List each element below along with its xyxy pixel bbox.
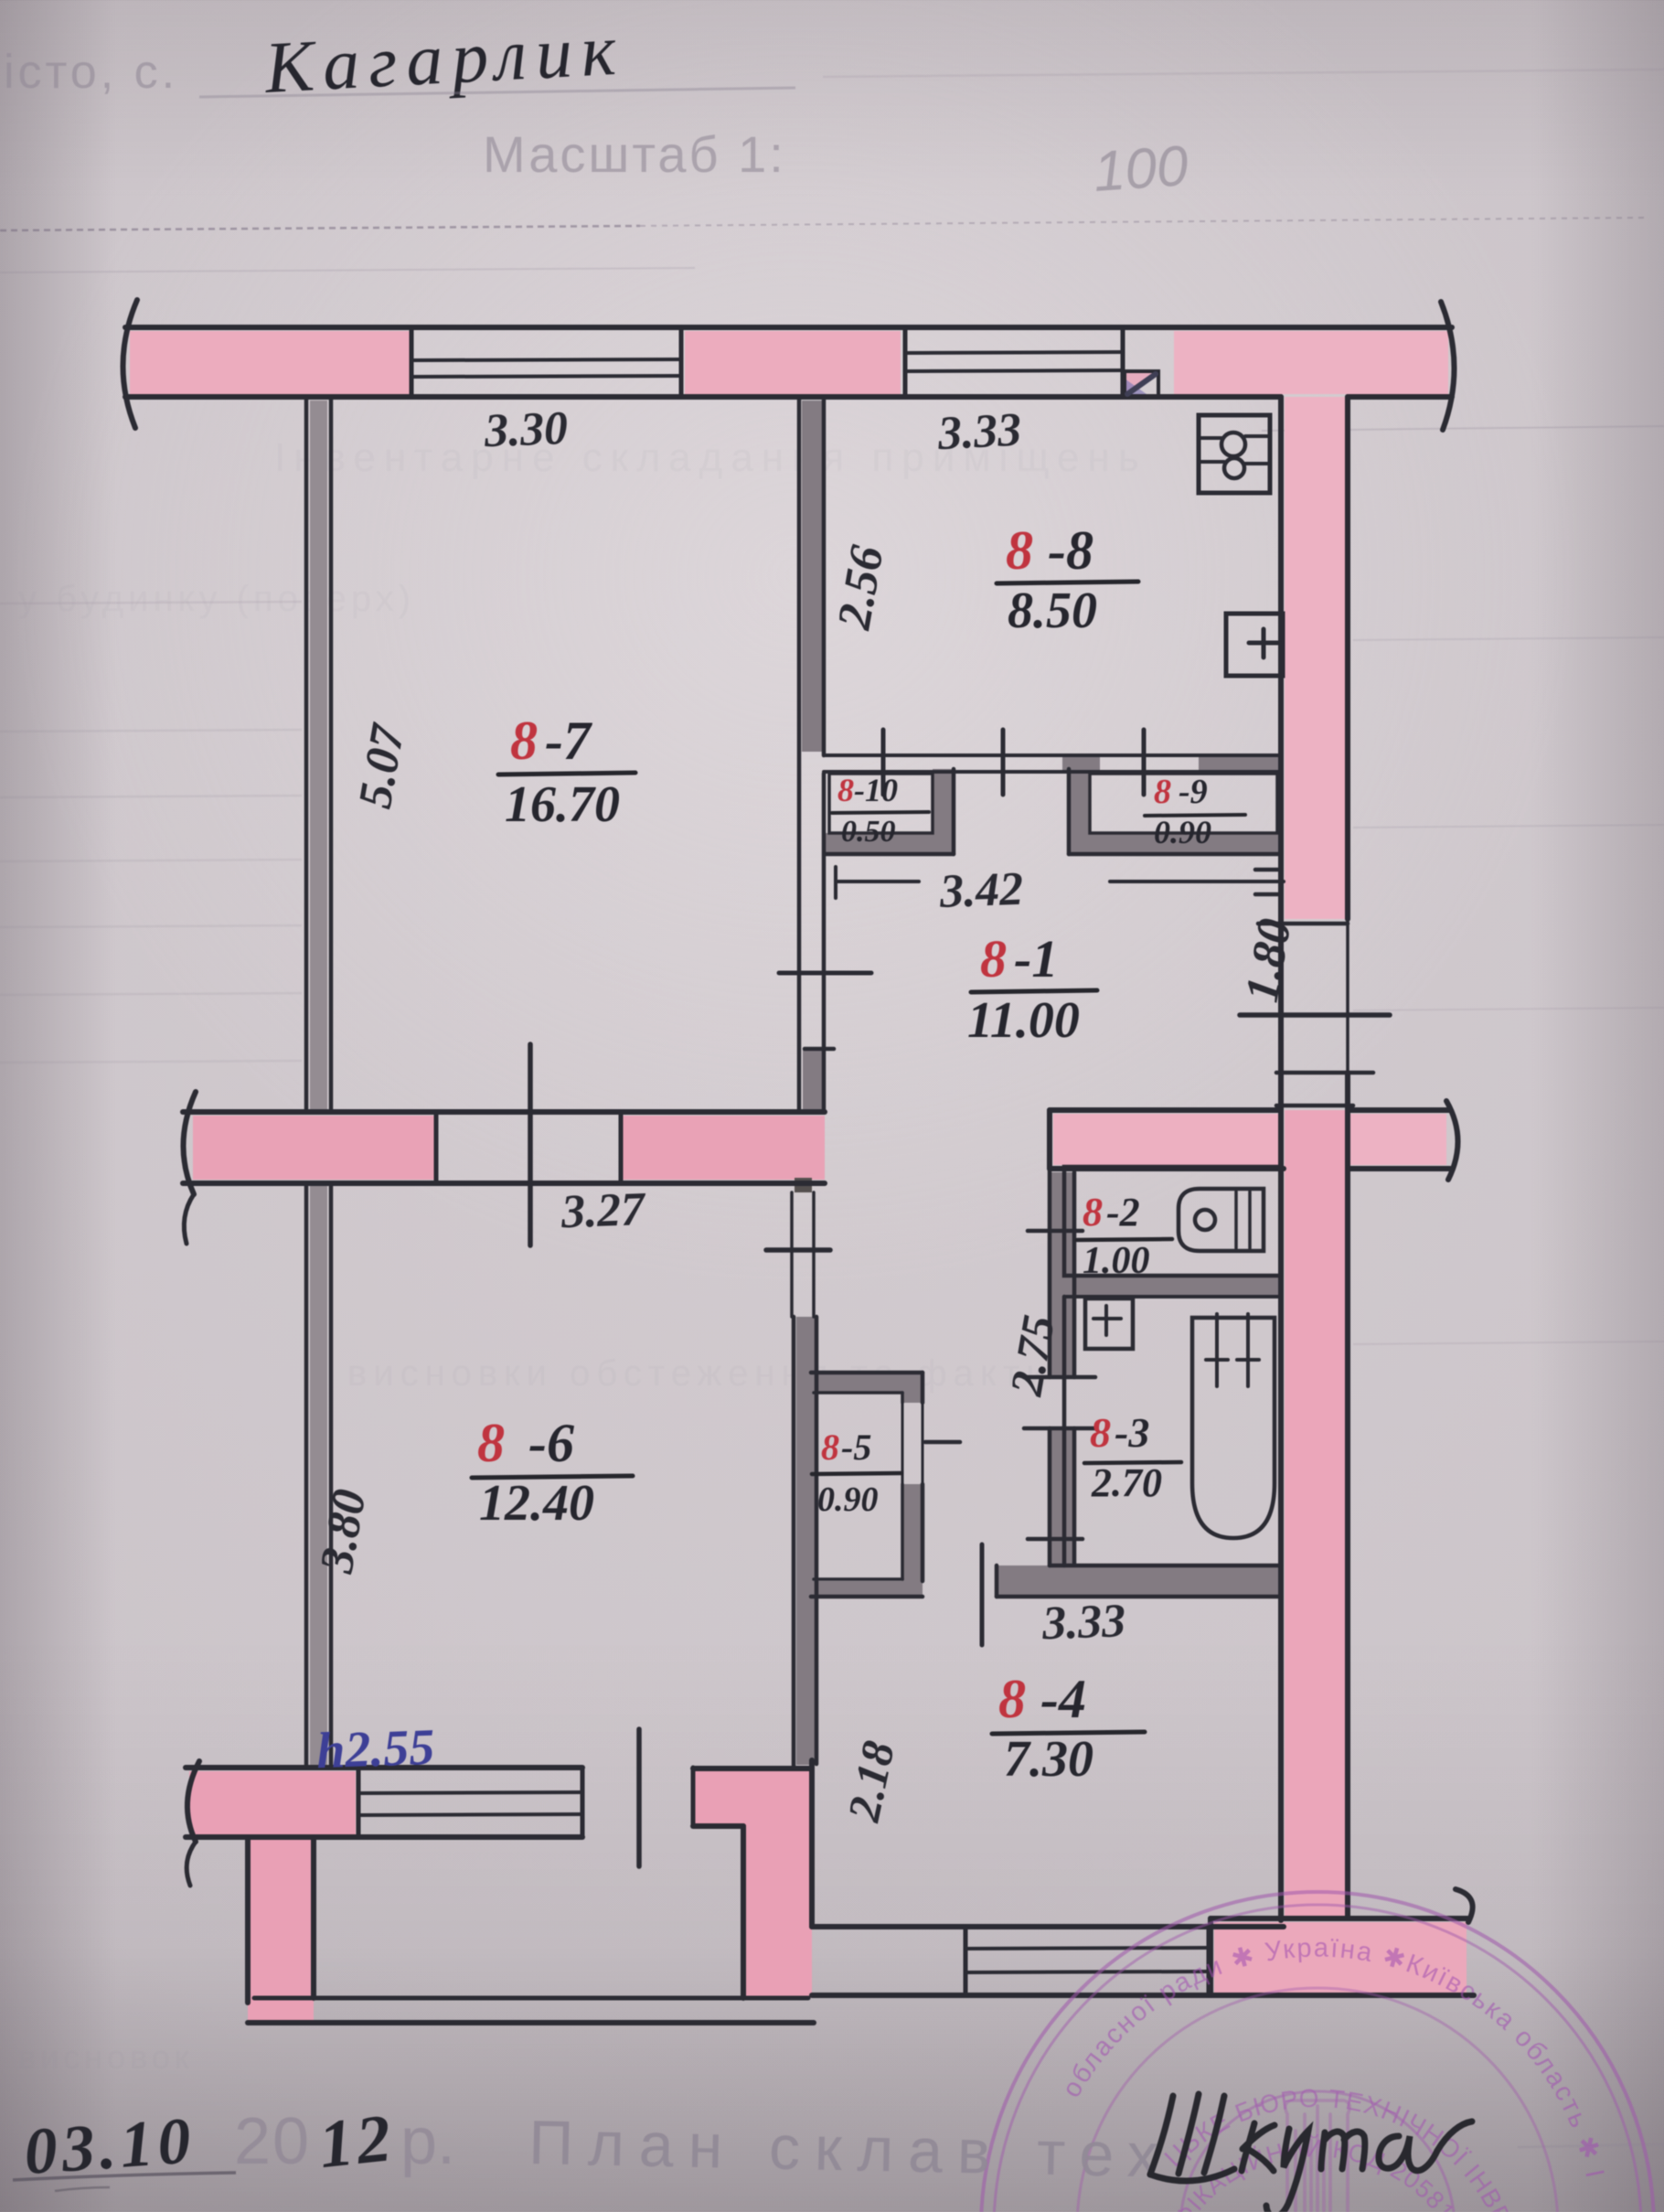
svg-text:12.40: 12.40	[479, 1475, 594, 1532]
svg-text:11.00: 11.00	[967, 992, 1080, 1049]
svg-text:3.33: 3.33	[936, 403, 1023, 460]
svg-text:8.50: 8.50	[1008, 582, 1097, 639]
svg-text:3.33: 3.33	[1040, 1595, 1126, 1650]
svg-text:5.07: 5.07	[349, 720, 415, 812]
svg-text:12: 12	[315, 2100, 398, 2183]
svg-text:8-4: 8-4	[998, 1669, 1086, 1729]
svg-text:8-8: 8-8	[1006, 520, 1093, 581]
svg-text:8-5: 8-5	[821, 1427, 871, 1468]
svg-text:0.50: 0.50	[841, 815, 896, 849]
svg-text:2.18: 2.18	[837, 1736, 904, 1826]
svg-text:висновок: висновок	[18, 2038, 194, 2076]
svg-text:2.75: 2.75	[1000, 1311, 1065, 1400]
svg-text:у будинку (поверх): у будинку (поверх)	[18, 579, 415, 619]
svg-text:20: 20	[234, 2105, 311, 2178]
svg-text:3.30: 3.30	[483, 402, 569, 457]
svg-text:8-2: 8-2	[1083, 1190, 1140, 1234]
svg-text:істо, с.: істо, с.	[4, 46, 178, 99]
svg-text:Масштаб 1:: Масштаб 1:	[483, 125, 786, 183]
svg-text:8-6: 8-6	[477, 1413, 574, 1473]
svg-text:1.80: 1.80	[1236, 915, 1302, 1007]
svg-text:0.90: 0.90	[1154, 814, 1211, 850]
svg-text:1.00: 1.00	[1083, 1240, 1150, 1282]
svg-text:2.70: 2.70	[1091, 1460, 1162, 1505]
svg-text:h2.55: h2.55	[315, 1719, 435, 1779]
svg-text:8-9: 8-9	[1154, 773, 1208, 811]
svg-text:8-10: 8-10	[837, 772, 898, 808]
svg-text:висновки обстеження та факти: висновки обстеження та факти	[347, 1353, 1052, 1394]
svg-text:8-3: 8-3	[1090, 1409, 1149, 1456]
svg-text:8-7: 8-7	[510, 711, 592, 771]
svg-text:3.27: 3.27	[560, 1183, 647, 1238]
svg-text:2.56: 2.56	[828, 542, 894, 635]
svg-text:8-1: 8-1	[980, 929, 1058, 988]
svg-text:7.30: 7.30	[1004, 1731, 1093, 1788]
svg-text:План склав тех: План склав тех	[528, 2108, 1174, 2191]
svg-text:16.70: 16.70	[505, 776, 620, 833]
svg-text:р.: р.	[400, 2105, 455, 2178]
svg-text:100: 100	[1092, 134, 1190, 204]
svg-text:3.42: 3.42	[938, 863, 1024, 918]
svg-text:0.90: 0.90	[817, 1480, 879, 1519]
